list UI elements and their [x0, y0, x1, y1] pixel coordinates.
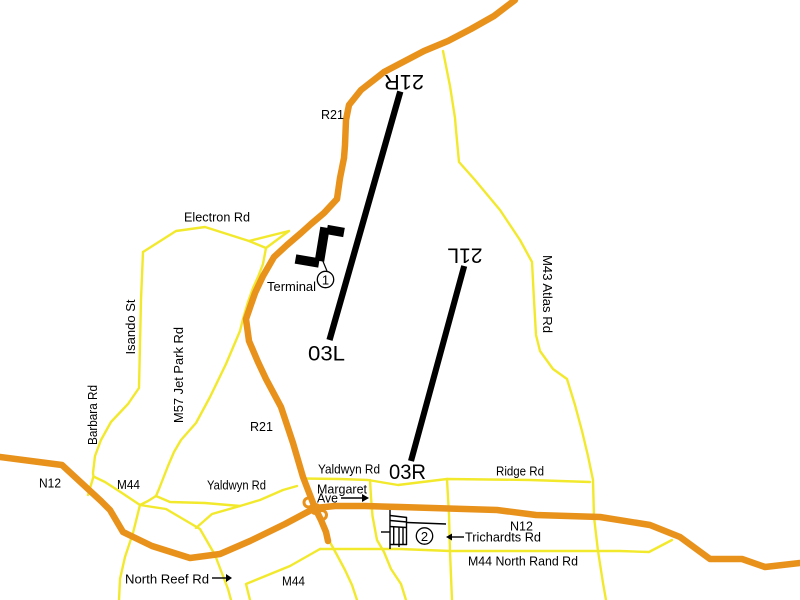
- svg-text:Yaldwyn Rd: Yaldwyn Rd: [318, 462, 380, 477]
- svg-text:2: 2: [421, 529, 428, 544]
- svg-text:21L: 21L: [448, 244, 483, 267]
- svg-text:North Reef Rd: North Reef Rd: [125, 572, 209, 587]
- svg-text:1: 1: [322, 273, 329, 288]
- svg-text:21R: 21R: [384, 70, 424, 93]
- svg-text:Barbara Rd: Barbara Rd: [85, 385, 100, 445]
- svg-text:M44 North Rand Rd: M44 North Rand Rd: [468, 554, 578, 569]
- svg-text:M44: M44: [117, 477, 140, 492]
- svg-text:Ave: Ave: [317, 491, 338, 506]
- svg-text:Electron Rd: Electron Rd: [184, 210, 250, 225]
- svg-text:N12: N12: [39, 476, 61, 491]
- svg-text:M43 Atlas Rd: M43 Atlas Rd: [540, 255, 555, 333]
- svg-text:R21: R21: [321, 107, 344, 122]
- svg-text:03L: 03L: [308, 343, 345, 366]
- svg-text:M44: M44: [282, 574, 305, 589]
- svg-text:Trichardts Rd: Trichardts Rd: [465, 530, 541, 545]
- svg-text:R21: R21: [250, 419, 273, 434]
- svg-text:Yaldwyn Rd: Yaldwyn Rd: [207, 478, 266, 493]
- svg-text:Isando St: Isando St: [123, 299, 138, 354]
- svg-text:Terminal: Terminal: [267, 279, 316, 294]
- svg-text:03R: 03R: [389, 461, 426, 484]
- svg-text:M57 Jet Park Rd: M57 Jet Park Rd: [171, 327, 186, 423]
- svg-text:Ridge Rd: Ridge Rd: [496, 464, 544, 479]
